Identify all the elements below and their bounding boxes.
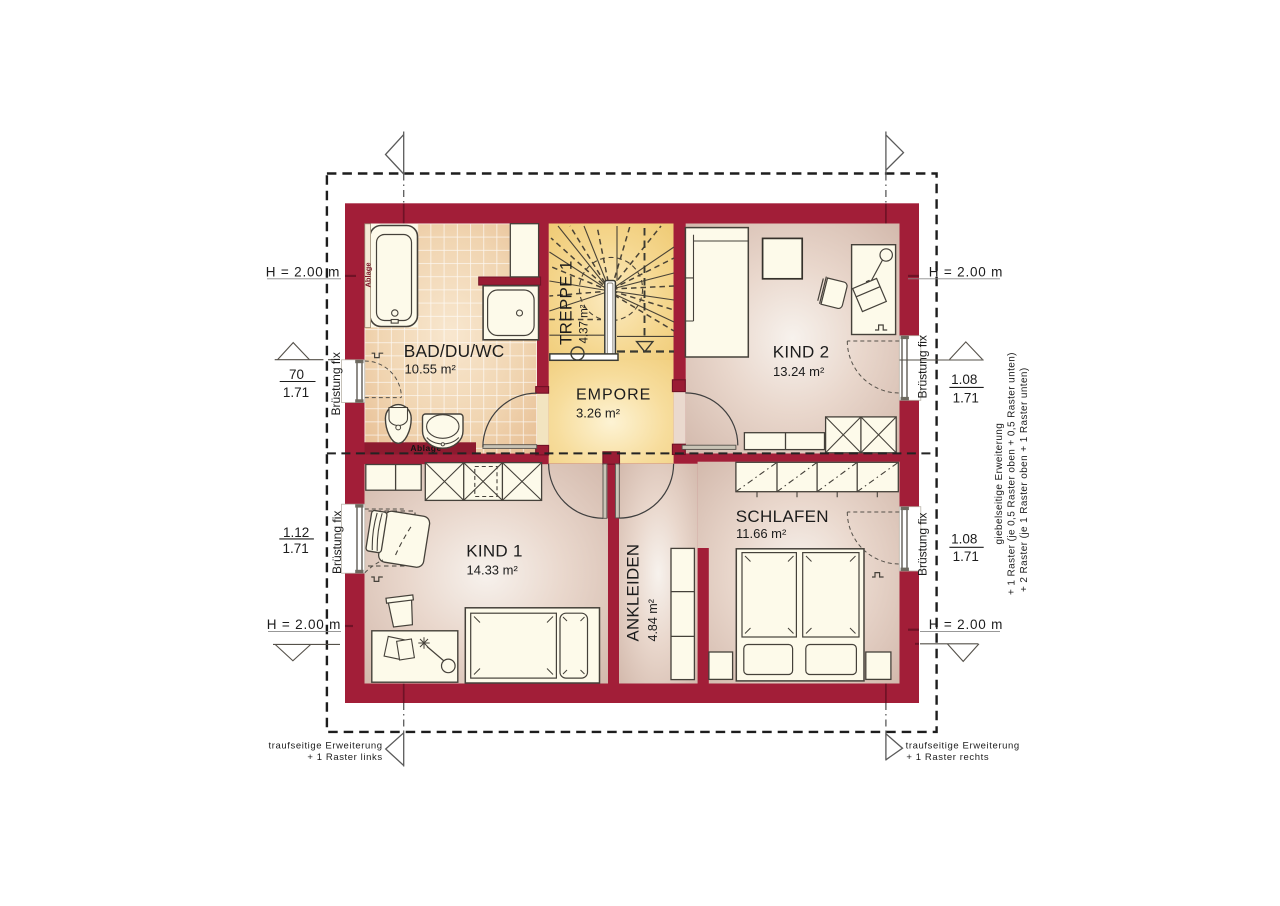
svg-text:+ 1 Raster rechts: + 1 Raster rechts <box>906 752 989 763</box>
svg-text:+ 1 Raster (je 0,5 Raster oben: + 1 Raster (je 0,5 Raster oben + 0,5 Ras… <box>1007 352 1018 595</box>
svg-text:giebelseitige Erweiterung: giebelseitige Erweiterung <box>994 423 1005 545</box>
svg-text:4.84 m²: 4.84 m² <box>646 599 660 641</box>
svg-text:traufseitige Erweiterung: traufseitige Erweiterung <box>268 741 382 752</box>
svg-text:EMPORE: EMPORE <box>576 387 651 404</box>
svg-text:KIND 1: KIND 1 <box>466 542 523 561</box>
svg-text:1.08: 1.08 <box>951 532 977 547</box>
svg-text:H = 2.00 m: H = 2.00 m <box>267 617 341 632</box>
svg-text:1.12: 1.12 <box>283 525 309 540</box>
svg-text:11.66 m²: 11.66 m² <box>736 526 787 541</box>
svg-text:3.26 m²: 3.26 m² <box>576 406 621 421</box>
svg-text:H = 2.00 m: H = 2.00 m <box>266 265 340 280</box>
svg-text:Brüstung fix: Brüstung fix <box>916 335 930 398</box>
svg-text:KIND 2: KIND 2 <box>773 343 830 362</box>
svg-text:H = 2.00 m: H = 2.00 m <box>929 265 1003 280</box>
svg-text:BAD/DU/WC: BAD/DU/WC <box>404 341 505 361</box>
svg-text:1.71: 1.71 <box>283 385 309 400</box>
svg-text:14.33 m²: 14.33 m² <box>467 563 519 578</box>
svg-text:1.71: 1.71 <box>953 391 979 406</box>
svg-text:SCHLAFEN: SCHLAFEN <box>736 507 829 526</box>
svg-text:1.71: 1.71 <box>282 541 308 556</box>
svg-text:Brüstung fix: Brüstung fix <box>329 352 343 415</box>
svg-text:1.08: 1.08 <box>951 372 977 387</box>
svg-text:H = 2.00 m: H = 2.00 m <box>929 617 1003 632</box>
svg-text:4.37 m²: 4.37 m² <box>579 304 591 343</box>
svg-text:Brüstung fix: Brüstung fix <box>916 513 930 576</box>
svg-text:ANKLEIDEN: ANKLEIDEN <box>624 544 643 642</box>
svg-text:1.71: 1.71 <box>953 549 979 564</box>
svg-text:70: 70 <box>289 367 304 382</box>
svg-text:13.24 m²: 13.24 m² <box>773 364 825 379</box>
svg-text:TREPPE 1: TREPPE 1 <box>557 260 576 345</box>
svg-text:+ 2 Raster (je 1 Raster oben +: + 2 Raster (je 1 Raster oben + 1 Raster … <box>1019 367 1030 592</box>
svg-text:Brüstung fix: Brüstung fix <box>330 511 344 574</box>
svg-text:10.55 m²: 10.55 m² <box>405 362 457 377</box>
svg-text:+ 1 Raster links: + 1 Raster links <box>307 752 382 763</box>
svg-text:traufseitige Erweiterung: traufseitige Erweiterung <box>906 741 1020 752</box>
svg-text:Ablage: Ablage <box>363 262 372 287</box>
